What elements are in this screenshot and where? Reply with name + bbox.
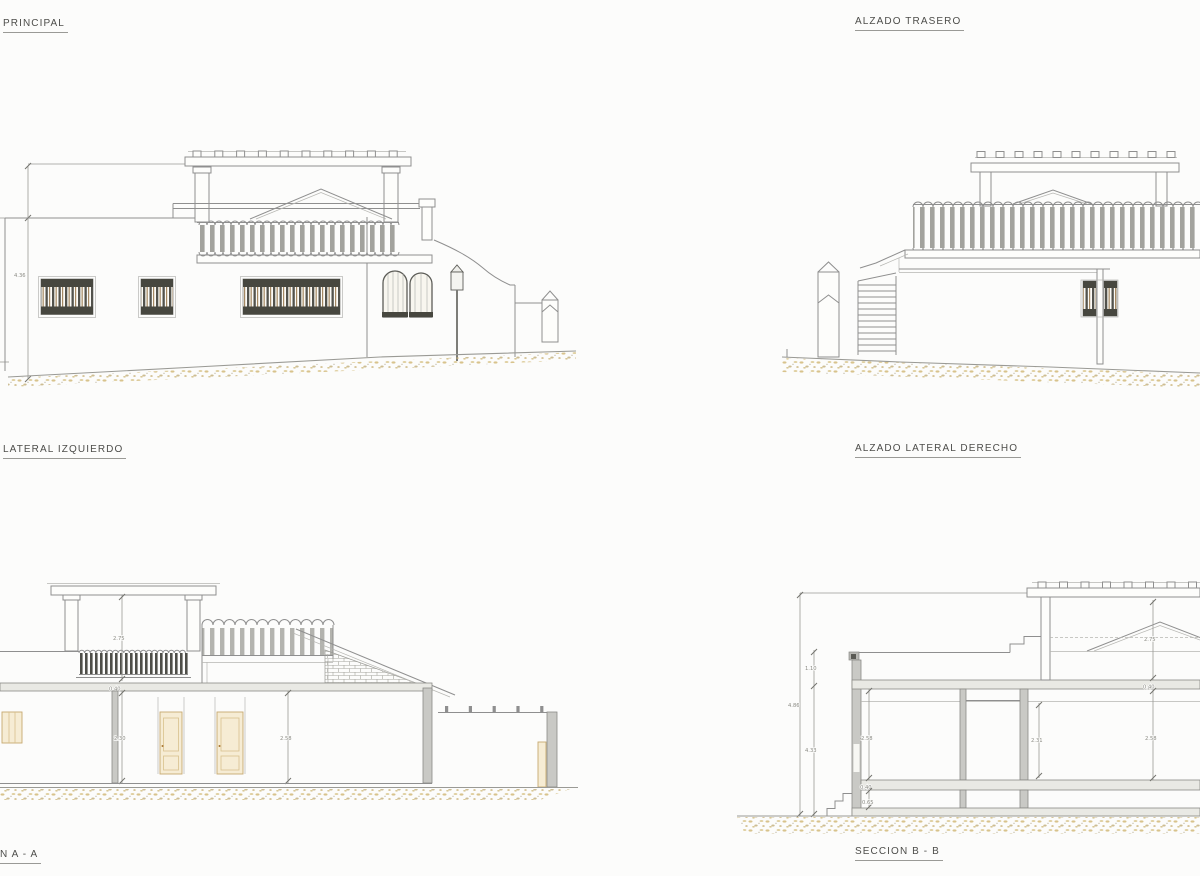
pergola-rafters bbox=[977, 152, 1175, 158]
dimension-label: 2.75 bbox=[1144, 637, 1156, 643]
door-handle bbox=[162, 745, 164, 747]
gable-roof bbox=[1050, 622, 1200, 652]
bottom-slab bbox=[852, 808, 1200, 816]
crawl-height-dimension: 0.65 bbox=[862, 788, 874, 810]
barred-window bbox=[241, 277, 343, 318]
foundation-wall bbox=[960, 790, 966, 808]
height-dimension: 4.36 bbox=[0, 163, 186, 382]
interior-wall bbox=[960, 689, 966, 780]
entrance-wing bbox=[434, 240, 515, 357]
interior-wall bbox=[1020, 689, 1028, 780]
chimney bbox=[542, 291, 558, 342]
ground-line bbox=[8, 351, 576, 387]
ground-line bbox=[737, 816, 1200, 834]
exterior-wall bbox=[423, 688, 432, 783]
barred-window bbox=[39, 277, 96, 318]
drawing-sheet: { "labels": { "principal": "PRINCIPAL", … bbox=[0, 0, 1200, 876]
gate bbox=[538, 742, 546, 787]
yard-posts bbox=[445, 706, 543, 713]
slatted-roof bbox=[202, 620, 334, 684]
terrace-balustrade bbox=[76, 650, 191, 677]
arched-window bbox=[382, 271, 408, 317]
pergola-rafters bbox=[1038, 582, 1197, 588]
door-handle bbox=[219, 745, 221, 747]
ground-line bbox=[0, 788, 578, 801]
dimension-label: 4.36 bbox=[14, 273, 26, 279]
dimension-label: 4.33 bbox=[805, 748, 817, 754]
roof-height-dimension: 2.75 bbox=[1144, 599, 1156, 681]
roof-balustrade bbox=[860, 202, 1200, 268]
stairs bbox=[858, 258, 899, 355]
room-height-dimension: 2.31 bbox=[1031, 702, 1043, 779]
floor-slab: 0.40 bbox=[0, 683, 432, 693]
door bbox=[215, 697, 245, 774]
room-height-dimension: 2.58 bbox=[1145, 688, 1157, 781]
dimension-label: 2.58 bbox=[861, 736, 873, 742]
alzado-principal-drawing: 4.36 bbox=[0, 151, 576, 387]
gable-roof bbox=[1013, 190, 1092, 204]
porch-post bbox=[1097, 269, 1103, 364]
dimension-label: 2.58 bbox=[280, 736, 292, 742]
plan-canvas: 4.36 bbox=[0, 0, 1200, 876]
porch bbox=[899, 269, 1110, 364]
chimney bbox=[818, 262, 839, 357]
room-height-dimension: 2.58 bbox=[280, 690, 292, 784]
dimension-label: 0.40 bbox=[1143, 685, 1155, 691]
floor-slab bbox=[861, 780, 1200, 790]
ground-line bbox=[782, 349, 1200, 388]
seccion-a-drawing: 2.75 0.40 2.30 bbox=[0, 584, 578, 801]
dimension-label: 1.10 bbox=[805, 666, 817, 672]
partial-height-dimension: 1.10 4.33 bbox=[805, 649, 817, 817]
stairs bbox=[818, 794, 852, 817]
room-height-dimension: 2.58 bbox=[861, 688, 873, 781]
lamp-post bbox=[451, 265, 463, 361]
alzado-trasero-drawing bbox=[782, 152, 1200, 389]
section-window bbox=[2, 712, 22, 743]
door bbox=[158, 697, 184, 774]
dimension-label: 0.65 bbox=[862, 800, 874, 806]
seccion-b-drawing: 4.86 1.10 4.33 2.58 0.40 0.65 2.31 bbox=[737, 582, 1200, 834]
dimension-label: 4.86 bbox=[788, 703, 800, 709]
roof-terrace bbox=[197, 221, 432, 263]
stair-rungs bbox=[858, 285, 896, 351]
arched-window bbox=[409, 273, 433, 317]
pergola-rafters bbox=[193, 151, 397, 157]
dimension-label: 2.75 bbox=[113, 636, 125, 642]
wall-opening bbox=[854, 744, 860, 772]
dimension-label: 2.58 bbox=[1145, 736, 1157, 742]
barred-window bbox=[139, 277, 176, 318]
pergola bbox=[47, 584, 220, 652]
yard-wall bbox=[432, 706, 557, 788]
dimension-label: 2.30 bbox=[114, 736, 126, 742]
parapet bbox=[849, 637, 1041, 661]
foundation-wall bbox=[1020, 790, 1028, 808]
dimension-label: 2.31 bbox=[1031, 738, 1043, 744]
pergola bbox=[1027, 582, 1200, 680]
